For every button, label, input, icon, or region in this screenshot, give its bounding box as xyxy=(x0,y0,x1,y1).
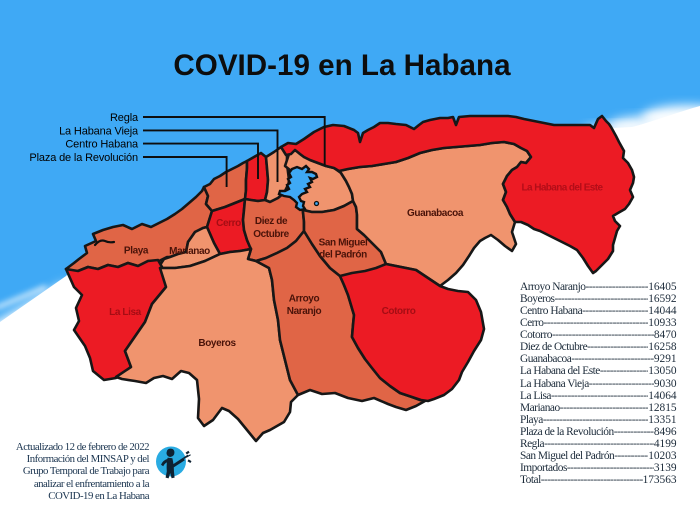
svg-text:La Lisa: La Lisa xyxy=(109,307,141,318)
svg-text:Arroyo: Arroyo xyxy=(289,294,320,305)
svg-text:Octubre: Octubre xyxy=(253,229,289,240)
svg-text:Boyeros: Boyeros xyxy=(198,338,236,349)
svg-text:La Habana del Este: La Habana del Este xyxy=(522,183,604,194)
svg-text:Plaza de la Revolución: Plaza de la Revolución xyxy=(29,152,138,164)
svg-text:Cerro: Cerro xyxy=(216,218,241,229)
svg-text:La Habana Vieja: La Habana Vieja xyxy=(59,125,139,137)
svg-text:Guanabacoa: Guanabacoa xyxy=(407,208,464,219)
svg-text:Cotorro: Cotorro xyxy=(382,306,416,317)
svg-text:Centro Habana: Centro Habana xyxy=(65,139,139,151)
svg-text:San Miguel: San Miguel xyxy=(319,238,368,249)
svg-text:Naranjo: Naranjo xyxy=(287,306,322,317)
svg-text:Marianao: Marianao xyxy=(169,246,210,257)
svg-text:del Padrón: del Padrón xyxy=(319,250,367,261)
svg-text:Playa: Playa xyxy=(124,246,149,257)
svg-text:Diez de: Diez de xyxy=(255,216,288,227)
svg-text:Regla: Regla xyxy=(110,112,139,124)
